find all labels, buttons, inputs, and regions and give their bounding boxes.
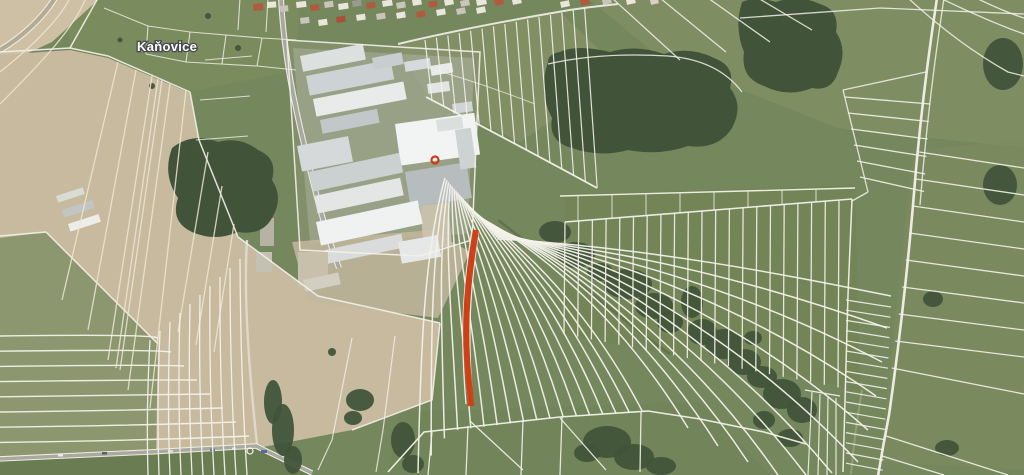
map-canvas[interactable]: Kaňovice bbox=[0, 0, 1024, 475]
place-label: Kaňovice bbox=[137, 39, 197, 54]
satellite-map[interactable]: Kaňovice bbox=[0, 0, 1024, 475]
